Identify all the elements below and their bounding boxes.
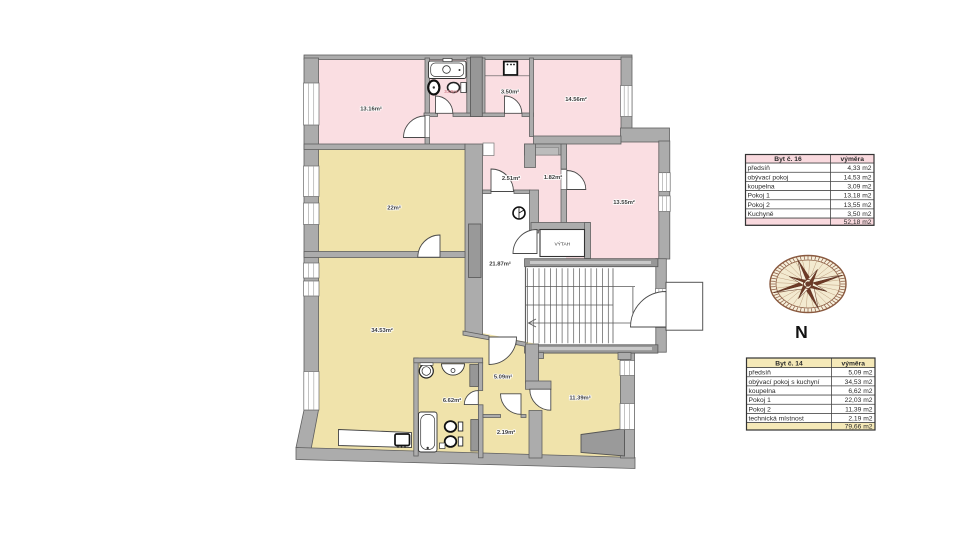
svg-text:11.39m²: 11.39m² (569, 395, 590, 402)
svg-text:předsíň: předsíň (748, 165, 771, 172)
svg-text:13.55m²: 13.55m² (613, 199, 635, 206)
svg-text:Pokoj 1: Pokoj 1 (748, 193, 771, 200)
svg-text:4,33 m2: 4,33 m2 (847, 165, 871, 172)
svg-text:obývací pokoj s kuchyní: obývací pokoj s kuchyní (749, 379, 820, 386)
svg-text:VÝTAH: VÝTAH (554, 241, 570, 248)
svg-text:předsíň: předsíň (749, 370, 772, 377)
svg-text:3,09 m2: 3,09 m2 (847, 183, 871, 190)
svg-text:výměra: výměra (842, 360, 866, 367)
svg-text:34.53m²: 34.53m² (371, 327, 393, 334)
svg-text:3.50m²: 3.50m² (501, 89, 519, 96)
svg-text:3,50 m2: 3,50 m2 (847, 211, 871, 218)
svg-text:6,62 m2: 6,62 m2 (848, 388, 872, 395)
svg-text:5.09m²: 5.09m² (494, 374, 512, 381)
svg-text:1.82m²: 1.82m² (544, 174, 562, 181)
svg-text:3.09m²: 3.09m² (444, 89, 459, 94)
svg-text:obývací pokoj: obývací pokoj (748, 174, 789, 181)
svg-text:5,09 m2: 5,09 m2 (848, 370, 872, 377)
svg-text:6.62m²: 6.62m² (443, 397, 461, 404)
svg-text:Pokoj 2: Pokoj 2 (748, 202, 771, 209)
svg-text:11,39 m2: 11,39 m2 (845, 406, 873, 413)
svg-text:Byt č. 14: Byt č. 14 (775, 360, 803, 367)
svg-text:14,53 m2: 14,53 m2 (844, 174, 872, 181)
svg-text:2.51m²: 2.51m² (502, 175, 520, 182)
svg-text:13,18 m2: 13,18 m2 (844, 193, 872, 200)
svg-text:výměra: výměra (841, 156, 865, 163)
svg-text:13.16m²: 13.16m² (360, 106, 382, 113)
svg-text:technická místnost: technická místnost (749, 416, 805, 423)
svg-text:Byt č. 16: Byt č. 16 (774, 156, 802, 163)
svg-text:22m²: 22m² (387, 205, 401, 212)
svg-text:22,03 m2: 22,03 m2 (845, 397, 873, 404)
svg-text:koupelna: koupelna (749, 388, 776, 395)
svg-text:34,53 m2: 34,53 m2 (845, 379, 873, 386)
svg-text:Kuchyně: Kuchyně (748, 211, 774, 218)
svg-text:13,55 m2: 13,55 m2 (844, 202, 872, 209)
svg-text:14.56m²: 14.56m² (565, 96, 587, 103)
svg-text:21.87m²: 21.87m² (489, 261, 511, 268)
svg-text:Pokoj 2: Pokoj 2 (749, 406, 772, 413)
svg-text:2.19m²: 2.19m² (497, 429, 515, 436)
svg-text:Pokoj 1: Pokoj 1 (749, 397, 772, 404)
svg-text:N: N (795, 322, 808, 342)
svg-text:koupelna: koupelna (748, 183, 775, 190)
svg-text:2,19 m2: 2,19 m2 (848, 416, 872, 423)
